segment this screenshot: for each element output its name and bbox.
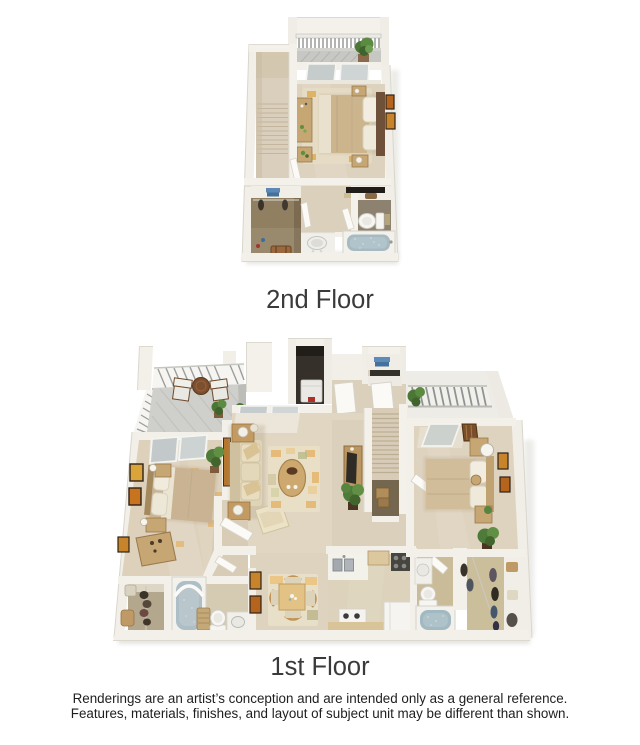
svg-text:Renderings are an artist’s con: Renderings are an artist’s conception an… [73,691,568,706]
svg-text:Features, materials, finishes,: Features, materials, finishes, and layou… [71,706,569,721]
svg-text:1st Floor: 1st Floor [270,653,370,681]
svg-text:2nd Floor: 2nd Floor [266,286,374,314]
